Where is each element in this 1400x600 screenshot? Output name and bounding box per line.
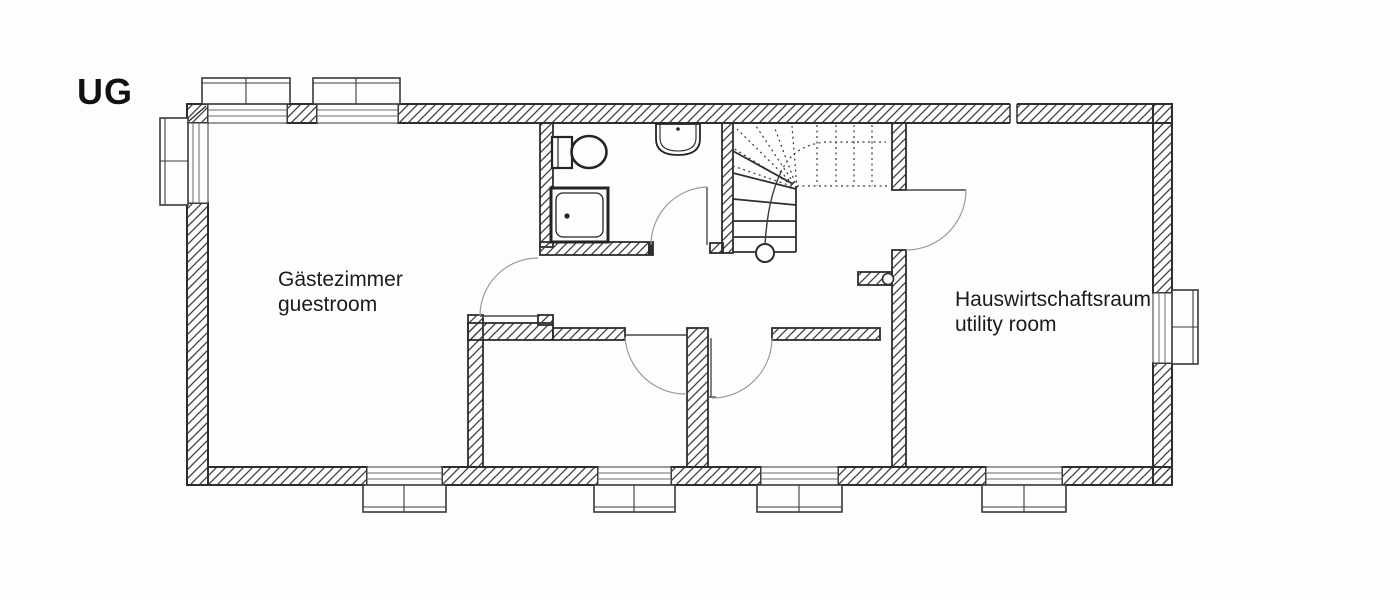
window-right (1153, 293, 1172, 363)
staircase (733, 125, 890, 262)
pipe-symbol (883, 274, 894, 285)
wall-bottom-3 (671, 467, 761, 485)
utility-room-door (906, 190, 966, 250)
window-frame-right (1172, 290, 1198, 364)
guestroom-label-de: Gästezimmer (278, 268, 403, 291)
bathroom-fixtures (551, 124, 700, 242)
storage-room-2-door (708, 338, 772, 398)
wall-top-long (398, 104, 1153, 123)
stair-right-wall-lower (892, 250, 906, 467)
stair-wall-stub (710, 243, 723, 253)
wall-left (187, 203, 208, 485)
storage-room-1-door (625, 335, 687, 394)
window-frame-bottom-3 (757, 485, 842, 512)
sink-icon (656, 124, 700, 155)
window-frame-top-1 (202, 78, 290, 104)
shower-drain (564, 213, 569, 218)
floor-plan-drawing: UG Gästezimmer guestroom Hauswirtschafts… (0, 0, 1400, 600)
wall-corner-top-right (1153, 104, 1172, 123)
toilet-icon (552, 136, 607, 168)
walking-line-start-circle (756, 244, 774, 262)
storage1-top-wall-thin (553, 328, 625, 340)
storage-divider-wall (687, 328, 708, 467)
window-bottom-1 (367, 467, 442, 485)
shower-tray-icon (551, 188, 608, 242)
window-left (187, 123, 208, 203)
wall-bottom-4 (838, 467, 986, 485)
window-bottom-4 (986, 467, 1062, 485)
window-frame-bottom-1 (363, 485, 446, 512)
window-frame-bottom-4 (982, 485, 1066, 512)
interior-walls (468, 123, 906, 467)
floor-plan-page: UG Gästezimmer guestroom Hauswirtschafts… (0, 0, 1400, 600)
storage2-top-wall (772, 328, 880, 340)
bathroom-bottom-wall (540, 242, 653, 255)
wall-bottom-5 (1062, 467, 1172, 485)
stair-right-wall-upper (892, 123, 906, 190)
wall-top-pier (287, 104, 317, 123)
guestroom-door (480, 258, 538, 316)
stair-left-wall (722, 123, 733, 253)
bathroom-door (651, 187, 707, 245)
utility-label-de: Hauswirtschaftsraum (955, 288, 1151, 311)
window-top-1 (208, 104, 287, 123)
window-frame-left (160, 118, 188, 205)
window-frame-bottom-2 (594, 485, 675, 512)
floor-label: UG (77, 71, 133, 112)
window-bottom-3 (761, 467, 838, 485)
storage1-wall-notch (538, 315, 553, 325)
wall-right-upper (1153, 123, 1172, 293)
wall-bottom-2 (442, 467, 598, 485)
window-top-2 (317, 104, 398, 123)
utility-label-en: utility room (955, 313, 1057, 336)
stair-walking-line (756, 142, 886, 262)
window-frame-top-2 (313, 78, 400, 104)
wall-joint (1010, 103, 1017, 124)
guestroom-label-en: guestroom (278, 293, 377, 316)
window-bottom-2 (598, 467, 671, 485)
stair-lower-flight (733, 151, 796, 252)
wall-bottom-1 (208, 467, 367, 485)
